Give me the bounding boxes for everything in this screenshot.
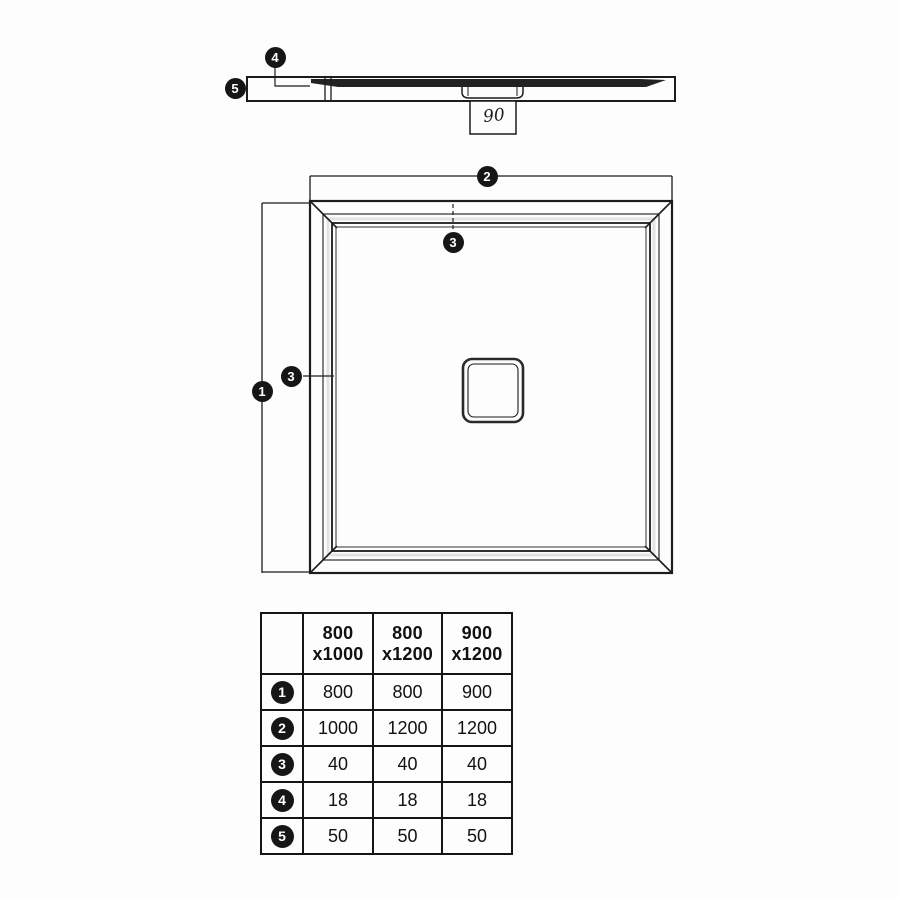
dimension-cell: 900	[442, 674, 512, 710]
dimension-cell: 50	[442, 818, 512, 854]
size-line1: 900	[443, 623, 511, 644]
size-column-header: 800 x1000	[303, 613, 373, 674]
size-column-header: 800 x1200	[373, 613, 442, 674]
marker-4-thickness: 4	[265, 47, 286, 68]
row-marker-cell: 2	[261, 710, 303, 746]
row-marker: 3	[271, 753, 294, 776]
table-row: 3 40 40 40	[261, 746, 512, 782]
row-marker-cell: 4	[261, 782, 303, 818]
dimension-cell: 40	[303, 746, 373, 782]
marker-1-length: 1	[252, 381, 273, 402]
header-empty-cell	[261, 613, 303, 674]
size-line1: 800	[304, 623, 372, 644]
row-marker-cell: 3	[261, 746, 303, 782]
marker-5-height: 5	[225, 78, 246, 99]
technical-drawing-page: 4 5 2 3 3 1 90 800 x1000 800 x1200 900 x…	[0, 0, 900, 900]
row-marker: 1	[271, 681, 294, 704]
dimension-cell: 800	[373, 674, 442, 710]
side-view	[247, 67, 675, 134]
dimension-cell: 18	[373, 782, 442, 818]
marker-3-rim-left: 3	[281, 366, 302, 387]
table-row: 5 50 50 50	[261, 818, 512, 854]
table-row: 1 800 800 900	[261, 674, 512, 710]
table-row: 2 1000 1200 1200	[261, 710, 512, 746]
plan-drain-outer	[463, 359, 523, 422]
drain-size-label: 90	[476, 104, 512, 127]
dimension-cell: 800	[303, 674, 373, 710]
row-marker: 4	[271, 789, 294, 812]
drain-trap-profile	[462, 87, 523, 98]
dimension-cell: 50	[303, 818, 373, 854]
marker-3-rim-top: 3	[443, 232, 464, 253]
dimension-cell: 1200	[442, 710, 512, 746]
row-marker-cell: 5	[261, 818, 303, 854]
size-column-header: 900 x1200	[442, 613, 512, 674]
dimension-cell: 50	[373, 818, 442, 854]
dimension-cell: 1000	[303, 710, 373, 746]
row-marker: 2	[271, 717, 294, 740]
dimension-cell: 18	[303, 782, 373, 818]
dimension-cell: 18	[442, 782, 512, 818]
table-header-row: 800 x1000 800 x1200 900 x1200	[261, 613, 512, 674]
dimension-cell: 1200	[373, 710, 442, 746]
row-marker: 5	[271, 825, 294, 848]
row-marker-cell: 1	[261, 674, 303, 710]
size-line2: x1200	[443, 644, 511, 665]
size-line2: x1200	[374, 644, 441, 665]
dimension-cell: 40	[442, 746, 512, 782]
size-line1: 800	[374, 623, 441, 644]
table-row: 4 18 18 18	[261, 782, 512, 818]
dimension-cell: 40	[373, 746, 442, 782]
side-top-surface-band	[311, 79, 666, 87]
dimensions-table: 800 x1000 800 x1200 900 x1200 1 800 800 …	[260, 612, 513, 855]
marker-2-width: 2	[477, 166, 498, 187]
plan-view	[262, 176, 672, 573]
size-line2: x1000	[304, 644, 372, 665]
